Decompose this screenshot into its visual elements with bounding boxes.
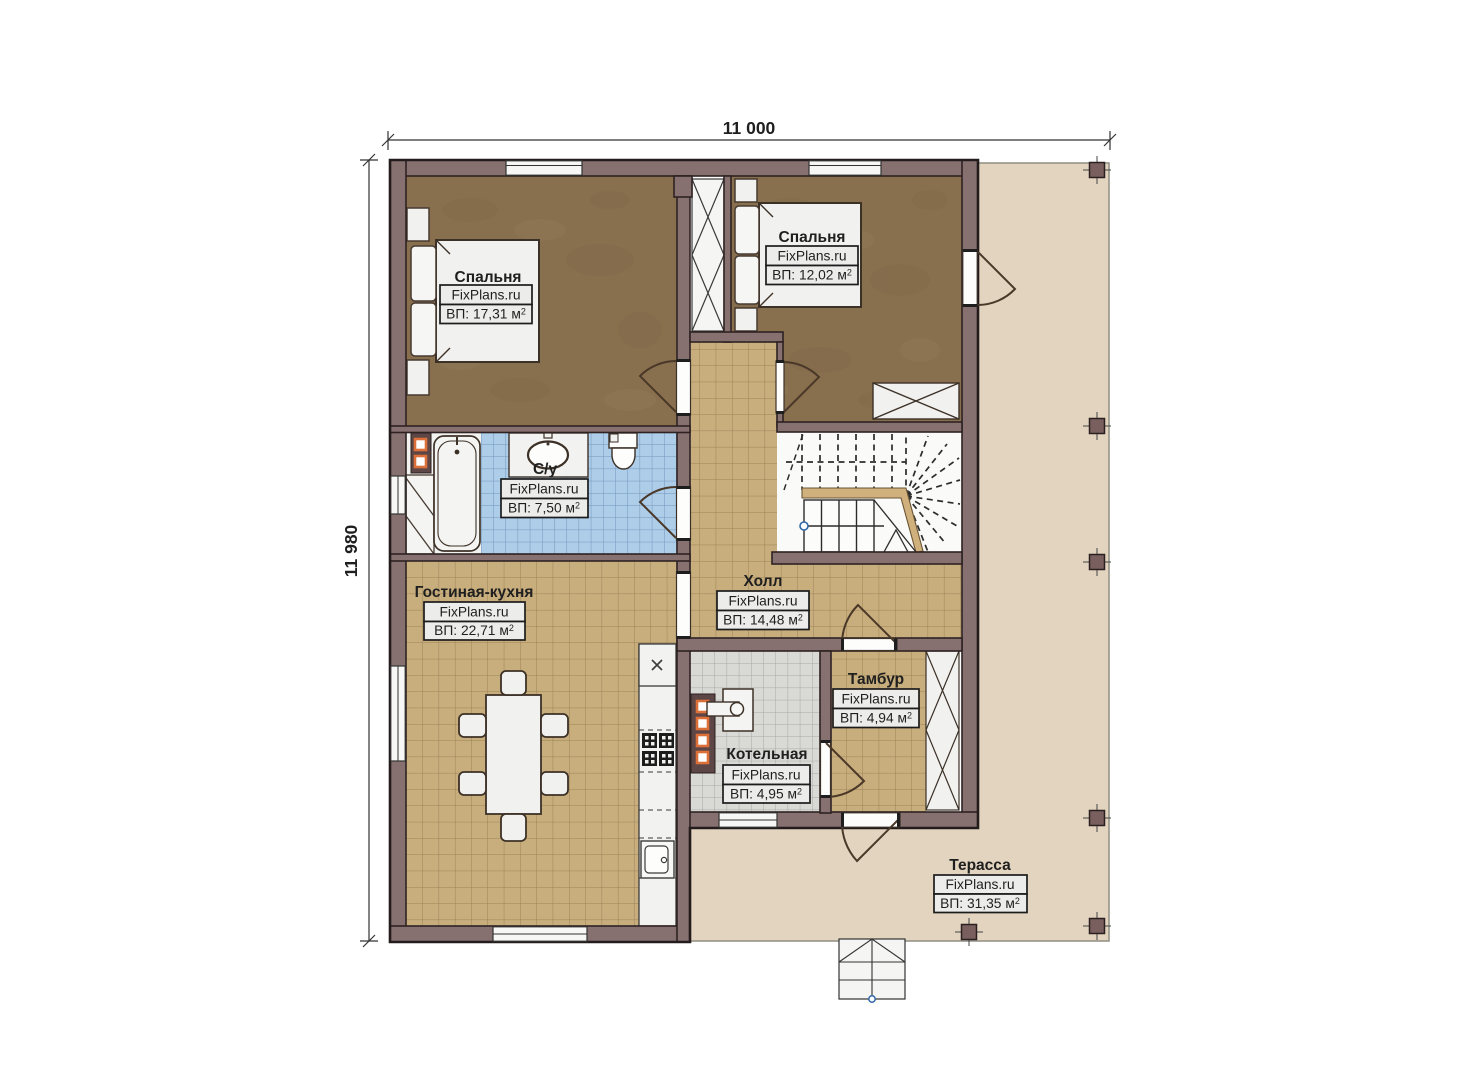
svg-text:Спальня: Спальня (779, 229, 846, 246)
svg-text:11 000: 11 000 (723, 118, 776, 138)
svg-text:11 980: 11 980 (341, 524, 361, 577)
svg-text:FixPlans.ru: FixPlans.ru (451, 288, 520, 303)
svg-text:FixPlans.ru: FixPlans.ru (777, 249, 846, 264)
svg-text:FixPlans.ru: FixPlans.ru (439, 605, 508, 620)
svg-text:Спальня: Спальня (455, 269, 522, 286)
svg-text:FixPlans.ru: FixPlans.ru (509, 482, 578, 497)
svg-text:ВП: 22,71 м2: ВП: 22,71 м2 (434, 623, 514, 638)
svg-text:ВП: 31,35 м2: ВП: 31,35 м2 (940, 896, 1020, 911)
svg-text:Тамбур: Тамбур (848, 671, 904, 688)
svg-text:FixPlans.ru: FixPlans.ru (731, 768, 800, 783)
svg-text:ВП: 12,02 м2: ВП: 12,02 м2 (772, 268, 852, 283)
svg-text:ВП: 4,94 м2: ВП: 4,94 м2 (840, 711, 912, 726)
svg-text:ВП: 4,95 м2: ВП: 4,95 м2 (730, 787, 802, 802)
svg-text:Терасса: Терасса (949, 857, 1011, 874)
svg-text:ВП: 14,48 м2: ВП: 14,48 м2 (723, 613, 803, 628)
svg-text:Котельная: Котельная (726, 746, 807, 763)
svg-text:FixPlans.ru: FixPlans.ru (728, 594, 797, 609)
svg-text:FixPlans.ru: FixPlans.ru (945, 877, 1014, 892)
svg-text:ВП: 7,50 м2: ВП: 7,50 м2 (508, 501, 580, 516)
svg-text:С/у: С/у (533, 461, 558, 478)
svg-text:FixPlans.ru: FixPlans.ru (841, 692, 910, 707)
svg-text:Гостиная-кухня: Гостиная-кухня (415, 584, 534, 601)
svg-text:Холл: Холл (744, 573, 783, 590)
svg-text:ВП: 17,31 м2: ВП: 17,31 м2 (446, 307, 526, 322)
